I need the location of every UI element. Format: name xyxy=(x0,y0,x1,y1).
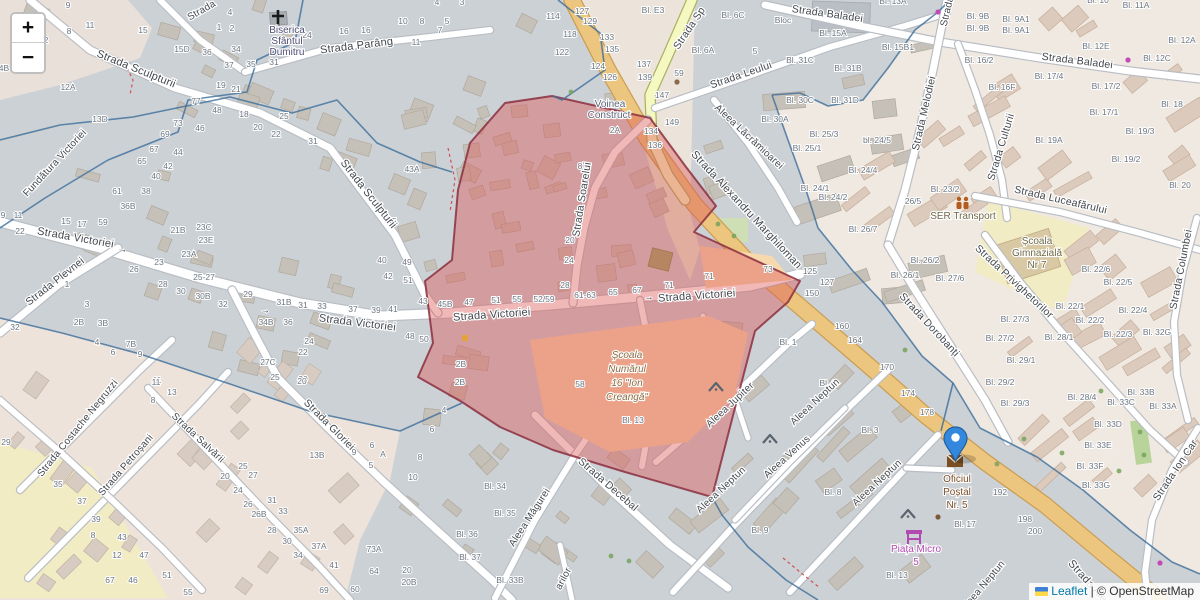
house-number-label: Bl. 22/4 xyxy=(1119,305,1148,315)
poi-label: Construct xyxy=(588,110,631,121)
house-number-label: Bl. 33F xyxy=(1077,461,1104,471)
oneway-arrow-icon: → xyxy=(260,304,271,316)
house-number-label: 69 xyxy=(160,129,170,139)
house-number-label: 7 xyxy=(438,25,443,35)
house-number-label: 60 xyxy=(350,584,360,594)
house-number-label: 58 xyxy=(575,379,585,389)
house-number-label: 129 xyxy=(583,16,597,26)
house-number-label: Bl. 31C xyxy=(786,55,814,65)
house-number-label: 44 xyxy=(173,147,183,157)
house-number-label: 67 xyxy=(149,144,159,154)
building xyxy=(803,253,826,267)
house-number-label: 64 xyxy=(369,566,379,576)
house-number-label: 17 xyxy=(77,219,87,229)
house-number-label: Bl. 36 xyxy=(456,529,478,539)
house-number-label: 4 xyxy=(435,0,440,7)
house-number-label: Bl. 8 xyxy=(824,487,841,497)
zoom-out-button[interactable]: − xyxy=(12,43,44,72)
house-number-label: 2B xyxy=(455,377,466,387)
house-number-label: Bl. 9B xyxy=(967,11,990,21)
house-number-label: 124 xyxy=(591,61,605,71)
house-number-label: 15 xyxy=(61,216,71,226)
house-number-label: 127 xyxy=(575,6,589,16)
house-number-label: 137 xyxy=(637,59,651,69)
poi-label: Piața Micro xyxy=(891,544,941,555)
house-number-label: 178 xyxy=(920,407,934,417)
house-number-label: 34B xyxy=(258,317,273,327)
house-number-label: Bl. 31D xyxy=(831,95,859,105)
house-number-label: 4 xyxy=(442,405,447,415)
oneway-arrow-icon: → xyxy=(643,292,654,304)
openstreetmap-link[interactable]: © OpenStreetMap xyxy=(1097,584,1194,598)
house-number-label: 41 xyxy=(388,304,398,314)
house-number-label: Bl. 29/1 xyxy=(1007,355,1036,365)
poi-label: 5 xyxy=(913,557,919,568)
poi-label: SER Transport xyxy=(930,211,996,222)
house-number-label: Bl. 28/4 xyxy=(1068,392,1097,402)
house-number-label: Bl. 13 xyxy=(886,570,908,580)
house-number-label: 11 xyxy=(152,377,161,387)
house-number-label: Bl. 31B xyxy=(834,63,862,73)
house-number-label: Bl. 33B xyxy=(1127,387,1155,397)
house-number-label: 8 xyxy=(418,452,423,462)
leaflet-link[interactable]: Leaflet xyxy=(1051,584,1087,598)
house-number-label: Bl. 19A xyxy=(1035,135,1063,145)
house-number-label: 22 xyxy=(15,226,25,236)
house-number-label: Bloc xyxy=(775,15,792,25)
house-number-label: 43 xyxy=(117,532,127,542)
house-number-label: 4B xyxy=(0,63,10,73)
house-number-label: Bl. 33G xyxy=(1082,480,1110,490)
house-number-label: 6 xyxy=(430,424,435,434)
house-number-label: Bl. 16/2 xyxy=(965,55,994,65)
house-number-label: 11 xyxy=(14,210,23,220)
house-number-label: 16 xyxy=(339,26,349,36)
house-number-label: Bl. 17/2 xyxy=(1092,81,1121,91)
poi-label: 16 "Ion xyxy=(611,378,643,389)
house-number-label: 40 xyxy=(377,255,387,265)
house-number-label: 46 xyxy=(128,575,138,585)
poi-dot xyxy=(1157,560,1162,565)
house-number-label: 114 xyxy=(546,11,560,21)
house-number-label: 37 xyxy=(224,60,234,70)
tree-icon xyxy=(903,348,908,353)
attribution-separator: | xyxy=(1091,584,1094,598)
house-number-label: 48 xyxy=(212,105,222,115)
house-number-label: 23A xyxy=(181,249,196,259)
house-number-label: 174 xyxy=(901,388,915,398)
house-number-label: 33 xyxy=(317,301,327,311)
house-number-label: 61 xyxy=(112,186,122,196)
house-number-label: 134 xyxy=(644,126,658,136)
house-number-label: 23 xyxy=(154,257,164,267)
poi-label: Oficiul xyxy=(943,474,971,485)
house-number-label: 164 xyxy=(848,335,862,345)
house-number-label: 77 xyxy=(191,96,201,106)
house-number-label: 27C xyxy=(260,357,276,367)
house-number-label: 46 xyxy=(195,123,205,133)
house-number-label: Bl. 33A xyxy=(1149,401,1177,411)
house-number-label: 39 xyxy=(371,305,381,315)
house-number-label: A xyxy=(380,449,386,459)
house-number-label: 34 xyxy=(231,44,241,54)
house-number-label: 67 xyxy=(632,285,642,295)
house-number-label: 42 xyxy=(163,161,173,171)
house-number-label: Bl. 17 xyxy=(954,519,976,529)
house-number-label: 26/5 xyxy=(905,196,922,206)
house-number-label: Bl. 26/1 xyxy=(891,270,920,280)
house-number-label: 1 xyxy=(217,22,222,32)
house-number-label: 20 xyxy=(253,122,263,132)
house-number-label: 24 xyxy=(304,336,314,346)
poi-label: Creangă" xyxy=(606,392,648,403)
tree-icon xyxy=(1138,430,1143,435)
house-number-label: Bl. 33D xyxy=(1094,419,1122,429)
house-number-label: 71 xyxy=(664,280,674,290)
house-number-label: 12 xyxy=(112,550,122,560)
house-number-label: 4 xyxy=(95,337,100,347)
house-number-label: 50 xyxy=(419,334,429,344)
house-number-label: 35A xyxy=(293,525,308,535)
house-number-label: 16 xyxy=(361,25,371,35)
poi-label: Școala xyxy=(612,350,643,361)
house-number-label: 5 xyxy=(369,460,374,470)
house-number-label: 31 xyxy=(269,57,279,67)
house-number-label: 10 xyxy=(408,472,418,482)
house-number-label: 52/59 xyxy=(533,294,555,304)
house-number-label: Bl. 34 xyxy=(484,481,506,491)
house-number-label: 125 xyxy=(803,266,817,276)
house-number-label: 26 xyxy=(243,499,253,509)
house-number-label: 37 xyxy=(77,496,87,506)
house-number-label: 40 xyxy=(151,171,161,181)
house-number-label: 3 xyxy=(460,0,465,7)
house-number-label: 36 xyxy=(283,317,293,327)
house-number-label: Bl. 23/2 xyxy=(931,184,960,194)
house-number-label: 11 xyxy=(86,20,95,30)
house-number-label: 13B xyxy=(309,450,324,460)
house-number-label: 7B xyxy=(126,339,137,349)
house-number-label: 42 xyxy=(383,271,393,281)
tree-icon xyxy=(716,222,721,227)
house-number-label: 31 xyxy=(298,300,308,310)
house-number-label: 9 xyxy=(66,0,71,10)
house-number-label: Bl. 17/4 xyxy=(1035,71,1064,81)
house-number-label: 192 xyxy=(993,487,1007,497)
house-number-label: 47 xyxy=(139,550,149,560)
house-number-label: 65 xyxy=(137,156,147,166)
tree-icon xyxy=(1060,451,1065,456)
house-number-label: 127 xyxy=(820,277,834,287)
house-number-label: Bl. 35 xyxy=(494,508,516,518)
poi-label: Gimnazială xyxy=(1012,248,1062,259)
house-number-label: Bl. 28/1 xyxy=(1045,332,1074,342)
house-number-label: 28 xyxy=(560,280,570,290)
house-number-label: bl. 24/5 xyxy=(863,135,891,145)
house-number-label: Bl. 24/2 xyxy=(819,192,848,202)
house-number-label: 32 xyxy=(10,322,20,332)
house-number-label: 51 xyxy=(491,295,501,305)
house-number-label: 3B xyxy=(98,318,109,328)
house-number-label: 71 xyxy=(704,271,714,281)
house-number-label: Bl. 33C xyxy=(1107,397,1135,407)
tree-icon xyxy=(1099,389,1104,394)
house-number-label: 3 xyxy=(85,299,90,309)
house-number-label: 55 xyxy=(512,294,522,304)
house-number-label: Bl. 19/3 xyxy=(1126,126,1155,136)
poi-dot xyxy=(1125,57,1130,62)
house-number-label: 135 xyxy=(605,44,619,54)
house-number-label: 18 xyxy=(239,109,249,119)
house-number-label: Bl. 24/4 xyxy=(849,165,878,175)
house-number-label: 20 xyxy=(220,471,230,481)
poi-label: Biserica xyxy=(269,25,305,36)
house-number-label: 8 xyxy=(91,530,96,540)
house-number-label: 67 xyxy=(105,575,115,585)
house-number-label: 170 xyxy=(880,362,894,372)
poi-dot xyxy=(935,514,940,519)
house-number-label: 36B xyxy=(120,201,135,211)
building xyxy=(872,99,897,119)
tree-icon xyxy=(732,234,737,239)
house-number-label: Bl. 25/1 xyxy=(793,143,822,153)
house-number-label: Bl. 25/3 xyxy=(810,129,839,139)
house-number-label: 37A xyxy=(311,541,326,551)
house-number-label: Bl. 27/2 xyxy=(986,333,1015,343)
house-number-label: 5 xyxy=(445,16,450,26)
house-number-label: 15D xyxy=(174,44,190,54)
tree-icon xyxy=(627,559,632,564)
house-number-label: 28 xyxy=(158,279,168,289)
house-number-label: 25 xyxy=(270,372,280,382)
house-number-label: 136 xyxy=(648,140,662,150)
map-canvas: 981124B1515D363441224161637353112A13D192… xyxy=(0,0,1200,600)
house-number-label: 35 xyxy=(246,59,256,69)
house-number-label: Bl. 33B xyxy=(496,575,524,585)
ukraine-flag-icon xyxy=(1035,587,1048,596)
house-number-label: 2 xyxy=(230,23,235,33)
poi-label: Sfântul xyxy=(271,36,302,47)
tree-icon xyxy=(995,462,1000,467)
house-number-label: 6 xyxy=(111,347,116,357)
house-number-label: 73A xyxy=(366,544,381,554)
poi-label: Dumitru xyxy=(269,47,304,58)
house-number-label: 43A xyxy=(404,164,419,174)
house-number-label: Bl. 6A xyxy=(692,45,715,55)
poi-dot xyxy=(935,9,940,14)
poi-label: Nr 7 xyxy=(1028,260,1047,271)
house-number-label: 118 xyxy=(563,29,577,39)
house-number-label: 25 xyxy=(279,111,289,121)
house-number-label: 69 xyxy=(319,585,329,595)
house-number-label: Bl. 33E xyxy=(1084,440,1112,450)
house-number-label: 22 xyxy=(271,129,281,139)
house-number-label: 31 xyxy=(267,495,277,505)
house-number-label: 22 xyxy=(298,347,308,357)
house-number-label: 13D xyxy=(92,114,108,124)
house-number-label: Bl. 9A1 xyxy=(1002,14,1030,24)
house-number-label: 9 xyxy=(1,210,6,220)
house-number-label: 35 xyxy=(53,479,63,489)
house-number-label: 29 xyxy=(1,437,11,447)
house-number-label: Bl. 22/3 xyxy=(1104,329,1133,339)
house-number-label: 147 xyxy=(655,90,669,100)
house-number-label: 8 xyxy=(420,16,425,26)
house-number-label: Bl. 22/2 xyxy=(1076,315,1105,325)
zoom-in-button[interactable]: + xyxy=(12,14,44,43)
house-number-label: 48 xyxy=(405,331,415,341)
house-number-label: 31 xyxy=(308,136,318,146)
house-number-label: 51 xyxy=(162,570,172,580)
house-number-label: 33 xyxy=(278,506,288,516)
poi-label: Nr. 5 xyxy=(946,500,968,511)
house-number-label: Bl. 20 xyxy=(1169,180,1191,190)
house-number-label: 160 xyxy=(835,321,849,331)
house-number-label: Bl. E3 xyxy=(642,5,665,15)
house-number-label: 73 xyxy=(173,118,183,128)
tree-icon xyxy=(1142,453,1147,458)
house-number-label: 59 xyxy=(674,68,684,78)
house-number-label: 30 xyxy=(282,536,292,546)
house-number-label: Bl. 22/5 xyxy=(1104,277,1133,287)
house-number-label: 23C xyxy=(196,222,212,232)
house-number-label: 34 xyxy=(293,550,303,560)
poi-label: Voinea xyxy=(595,99,626,110)
house-number-label: 198 xyxy=(1018,514,1032,524)
house-number-label: Bl. 6C xyxy=(721,10,744,20)
house-number-label: 133 xyxy=(600,32,614,42)
house-number-label: Bl. 29/3 xyxy=(1001,398,1030,408)
house-number-label: Bl. 37 xyxy=(459,552,481,562)
house-number-label: Bl. 30C xyxy=(786,95,814,105)
house-number-label: 36 xyxy=(202,47,212,57)
house-number-label: 65 xyxy=(608,287,618,297)
house-number-label: 25-27 xyxy=(193,272,215,282)
house-number-label: 21 xyxy=(231,84,241,94)
house-number-label: 41 xyxy=(329,560,339,570)
house-number-label: 31B xyxy=(276,297,291,307)
house-number-label: Bl. 13 xyxy=(622,415,644,425)
house-number-label: Bl. 27/3 xyxy=(1001,314,1030,324)
house-number-label: 20B xyxy=(401,577,416,587)
map-viewport[interactable]: 981124B1515D363441224161637353112A13D192… xyxy=(0,0,1200,600)
house-number-label: Bl. 13A xyxy=(879,0,907,6)
house-number-label: Bl. 17/1 xyxy=(1090,107,1119,117)
poi-label: Numărul xyxy=(608,364,647,375)
house-number-label: Bl. 15A xyxy=(819,28,847,38)
house-number-label: 126 xyxy=(603,72,617,82)
house-number-label: 4 xyxy=(228,7,233,17)
zoom-control: + − xyxy=(10,12,46,74)
attribution-bar: Leaflet | © OpenStreetMap xyxy=(1029,583,1200,600)
house-number-label: Bl. 27/6 xyxy=(936,273,965,283)
house-number-label: 5 xyxy=(753,46,758,56)
house-number-label: Bl. 19/2 xyxy=(1112,154,1141,164)
house-number-label: Bl. 29/2 xyxy=(986,377,1015,387)
house-number-label: 20 xyxy=(402,565,412,575)
house-number-label: 122 xyxy=(555,47,569,57)
house-number-label: 2A xyxy=(610,125,621,135)
house-number-label: 26 xyxy=(129,264,139,274)
house-number-label: 2B xyxy=(74,317,85,327)
house-number-label: 12A xyxy=(60,82,75,92)
house-number-label: Bl. 26/7 xyxy=(849,224,878,234)
house-number-label: Bl. 32G xyxy=(1143,327,1171,337)
house-number-label: 28 xyxy=(267,525,277,535)
house-number-label: 19 xyxy=(216,80,226,90)
poi-label: Școala xyxy=(1022,236,1053,247)
house-number-label: 8 xyxy=(67,26,72,36)
house-number-label: Bl. 22/1 xyxy=(1056,301,1085,311)
house-number-label: Bl. 12C xyxy=(1143,53,1171,63)
house-number-label: 26B xyxy=(251,509,266,519)
house-number-label: Bl. 10 xyxy=(1087,0,1109,5)
house-number-label: 23E xyxy=(198,235,213,245)
tree-icon xyxy=(609,554,614,559)
house-number-label: Bl. 11A xyxy=(1123,0,1150,10)
house-number-label: 2B xyxy=(456,359,467,369)
house-number-label: 73 xyxy=(763,264,773,274)
house-number-label: 9 xyxy=(138,349,143,359)
house-number-label: 200 xyxy=(1028,526,1042,536)
house-number-label: 149 xyxy=(665,117,679,127)
house-number-label: Bl. 9B xyxy=(967,23,990,33)
oneway-arrow-icon: → xyxy=(117,243,129,256)
house-number-label: 6 xyxy=(370,440,375,450)
house-number-label: 32 xyxy=(218,299,228,309)
house-number-label: 39 xyxy=(91,514,101,524)
house-number-label: 43 xyxy=(418,296,428,306)
house-number-label: 13 xyxy=(167,387,177,397)
house-number-label: Bl. 12A xyxy=(1168,35,1196,45)
house-number-label: 55 xyxy=(183,587,193,597)
house-number-label: 30 xyxy=(176,286,186,296)
house-number-label: 59 xyxy=(98,217,108,227)
house-number-label: Bl. 16F xyxy=(989,82,1016,92)
marker-pin-hole xyxy=(951,433,959,441)
house-number-label: 11 xyxy=(412,37,421,47)
house-number-label: 38 xyxy=(141,186,151,196)
house-number-label: Bl. 30A xyxy=(761,114,789,124)
house-number-label: 150 xyxy=(805,288,819,298)
house-number-label: Bl. 12E xyxy=(1082,41,1110,51)
house-number-label: 47 xyxy=(464,297,474,307)
house-number-label: 37 xyxy=(348,304,358,314)
road xyxy=(906,468,952,470)
house-number-label: 24 xyxy=(564,255,574,265)
poi-dot xyxy=(462,335,468,341)
house-number-label: 21B xyxy=(170,225,185,235)
house-number-label: Bl. 3 xyxy=(861,425,878,435)
house-number-label: 25 xyxy=(238,461,248,471)
poi-label: Poștal xyxy=(943,487,971,498)
house-number-label: 8 xyxy=(151,395,156,405)
tree-icon xyxy=(1117,469,1122,474)
house-number-label: 51 xyxy=(403,275,413,285)
house-number-label: Bl. 22/6 xyxy=(1082,264,1111,274)
house-number-label: 24 xyxy=(233,485,243,495)
house-number-label: 27 xyxy=(248,470,258,480)
house-number-label: 45B xyxy=(437,299,452,309)
house-number-label: 29 xyxy=(243,289,253,299)
tree-icon xyxy=(1022,437,1027,442)
house-number-label: 10 xyxy=(398,16,408,26)
house-number-label: 49 xyxy=(402,257,412,267)
house-number-label: 15 xyxy=(138,25,148,35)
house-number-label: 139 xyxy=(638,72,652,82)
house-number-label: Bl. 18 xyxy=(1161,99,1183,109)
house-number-label: Bl. 26/2 xyxy=(911,255,940,265)
